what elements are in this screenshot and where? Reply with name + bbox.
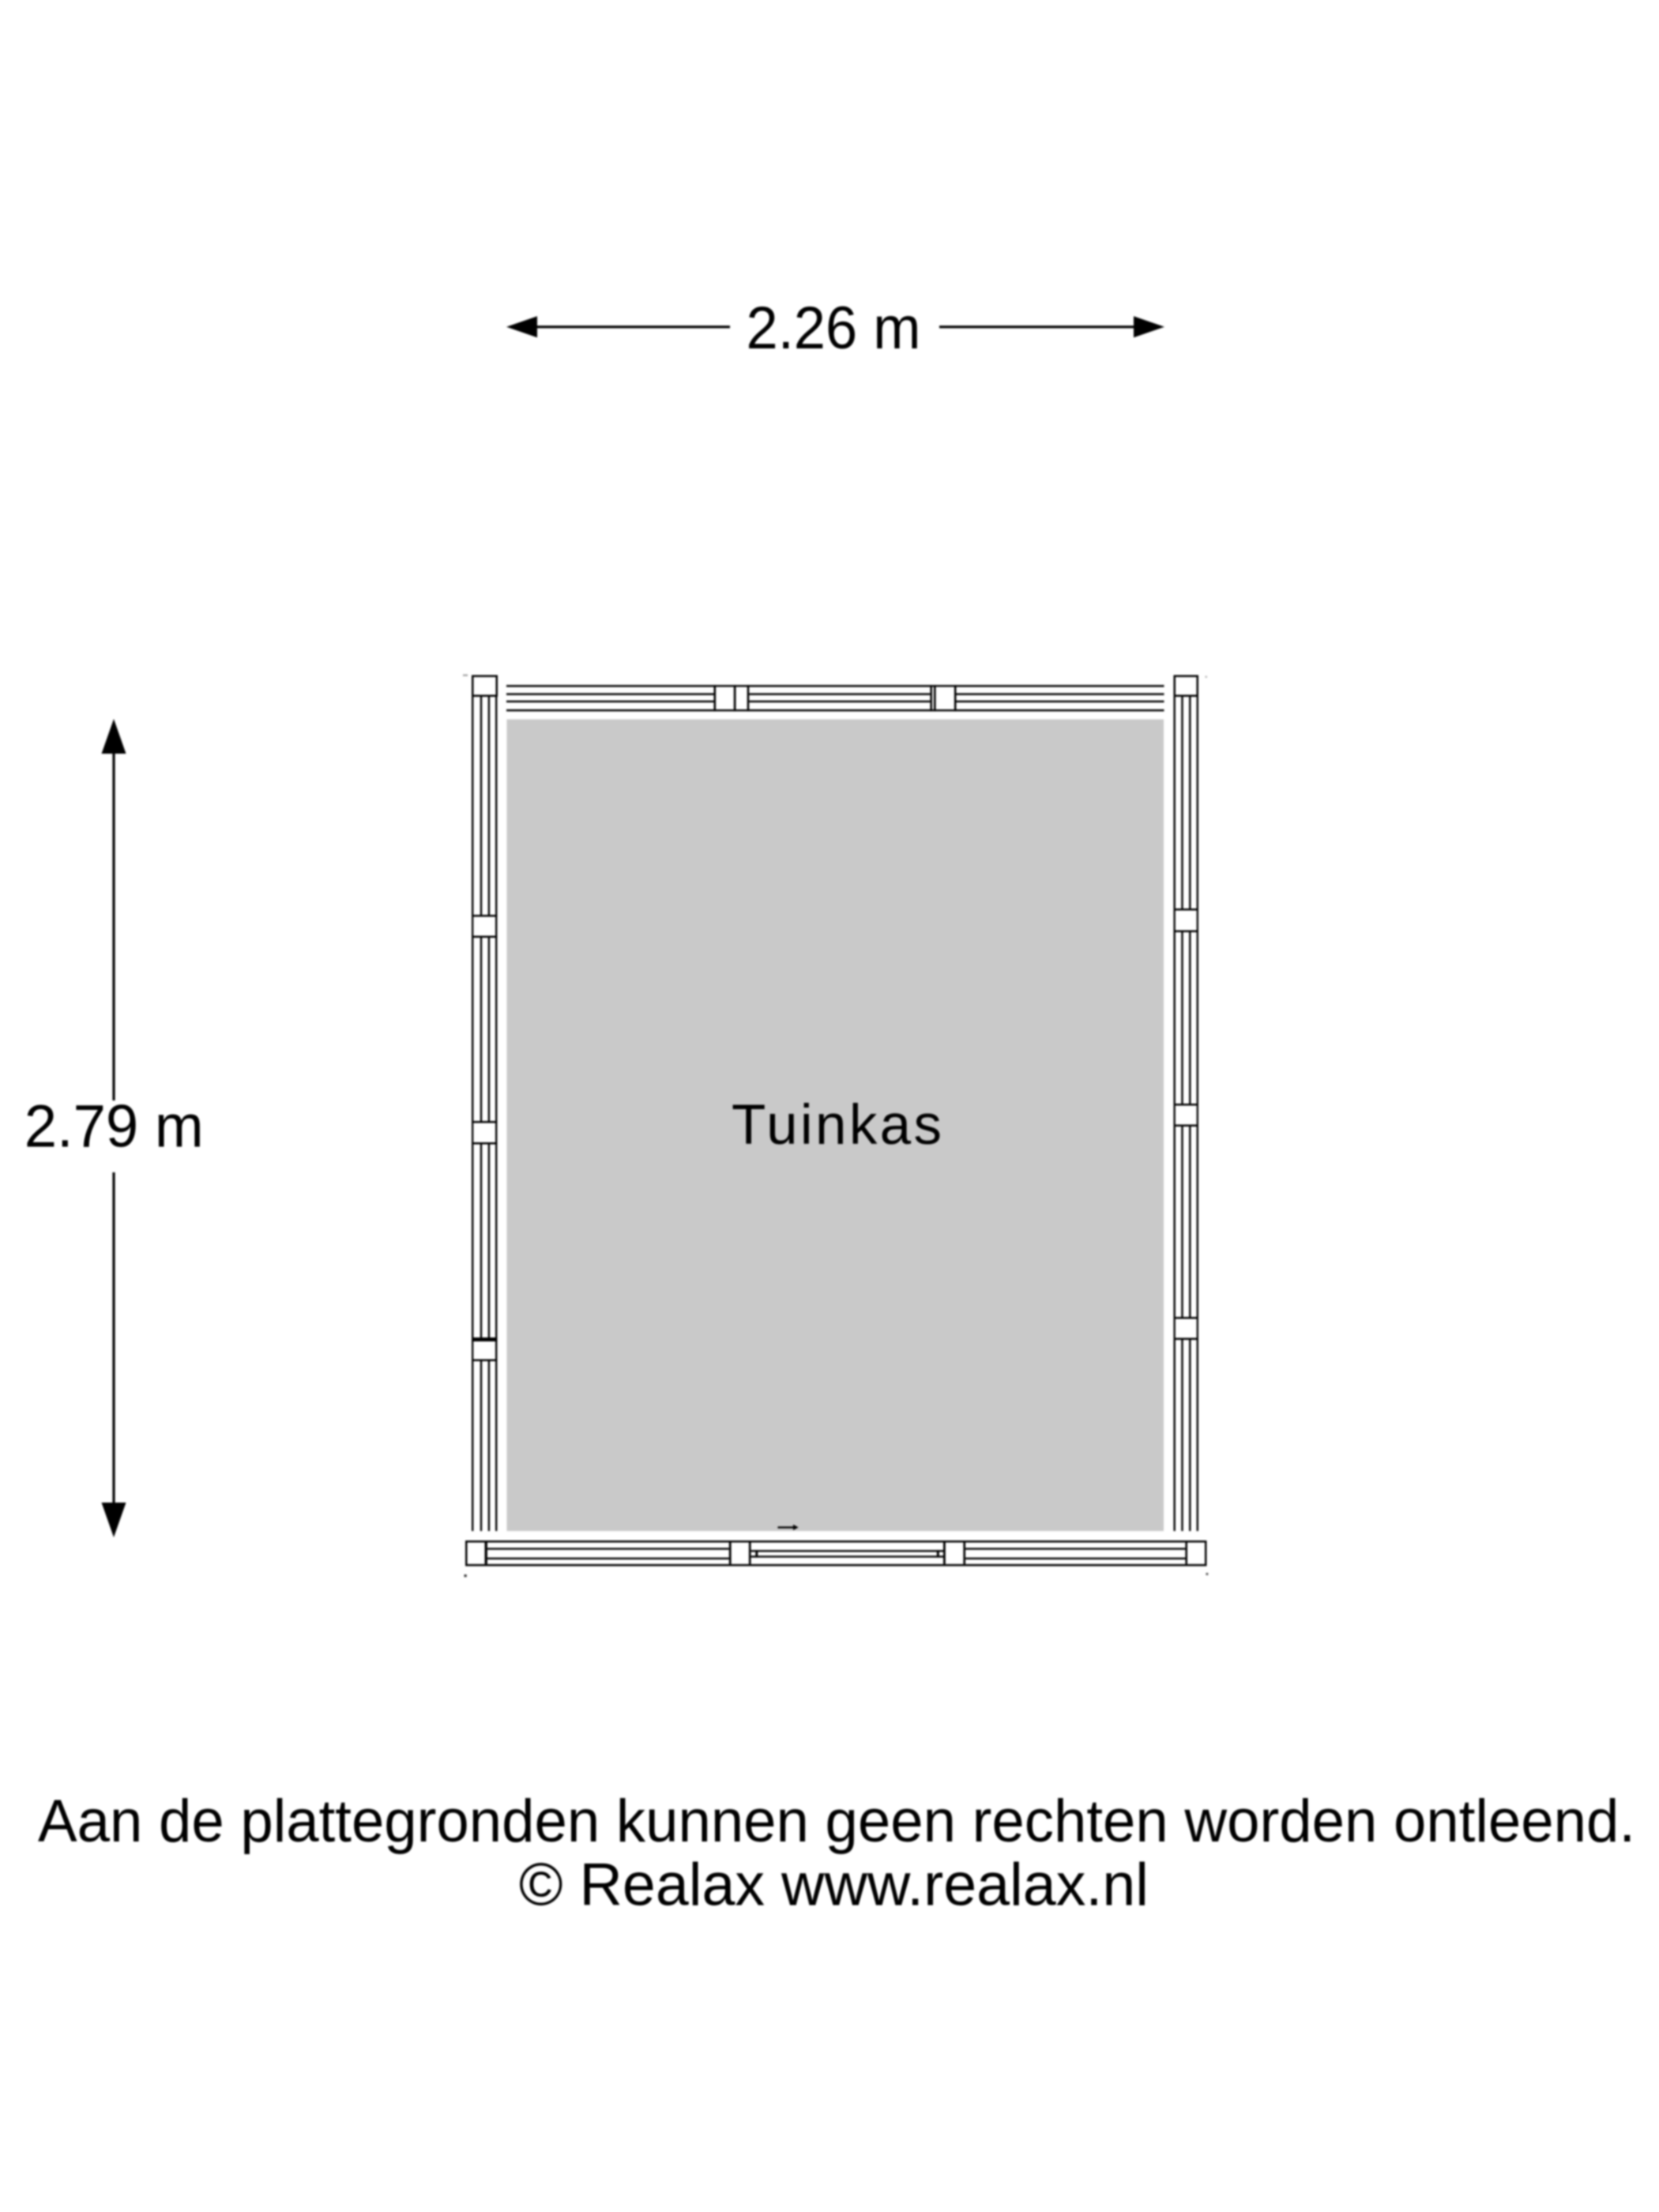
svg-text:Tuinkas: Tuinkas <box>732 1094 942 1157</box>
svg-text:© Realax www.realax.nl: © Realax www.realax.nl <box>519 1852 1149 1919</box>
svg-text:2.79 m: 2.79 m <box>24 1093 204 1161</box>
svg-text:Aan de plattegronden kunnen ge: Aan de plattegronden kunnen geen rechten… <box>38 1788 1635 1855</box>
svg-text:2.26 m: 2.26 m <box>747 295 921 362</box>
